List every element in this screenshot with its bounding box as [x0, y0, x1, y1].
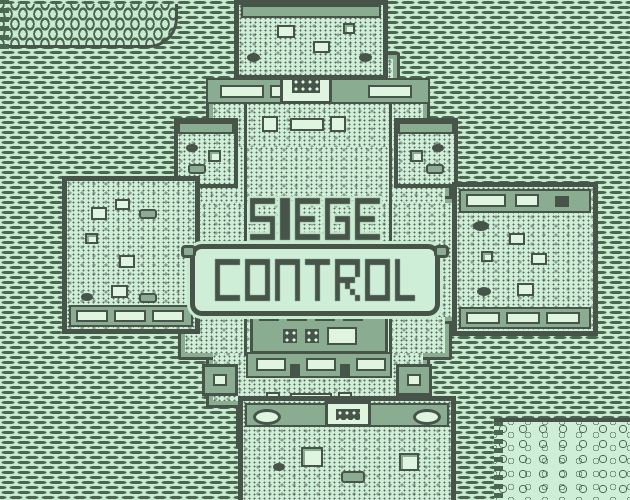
room-west	[62, 176, 200, 334]
room-north	[234, 0, 388, 80]
console-buttons	[336, 409, 360, 420]
doorway	[555, 196, 569, 207]
tower-window	[407, 374, 421, 386]
console-buttons	[292, 78, 320, 93]
gate-console	[325, 401, 371, 427]
wall-panel	[152, 310, 184, 322]
crate-sprite	[301, 447, 323, 467]
pot-sprite	[186, 144, 198, 152]
table-sprite	[277, 25, 295, 38]
wall-band	[178, 122, 234, 134]
wall-band	[459, 189, 591, 213]
cobblestone-patch	[494, 418, 630, 500]
wall-band	[398, 122, 454, 134]
machine-panel	[315, 305, 335, 321]
table-sprite	[531, 253, 547, 265]
wall-panel	[466, 194, 506, 207]
round-table-sprite	[413, 409, 441, 425]
table-sprite	[313, 41, 330, 53]
pot-sprite	[473, 221, 489, 231]
wall-panel	[114, 310, 146, 322]
pot-sprite	[477, 287, 491, 296]
pot-sprite	[359, 53, 372, 62]
wall-band	[69, 305, 193, 327]
wall-panel	[220, 85, 264, 98]
machine-panel	[287, 305, 307, 321]
sofa-sprite	[341, 471, 365, 483]
machine-panel	[343, 305, 363, 321]
console-unit	[283, 329, 297, 343]
console-unit	[305, 329, 319, 343]
table-sprite	[517, 283, 534, 296]
tower-se	[396, 364, 432, 396]
table-sprite	[111, 285, 128, 298]
pot-sprite	[273, 463, 285, 471]
wall-band	[459, 307, 591, 329]
wall-band	[241, 5, 381, 18]
table-sprite	[119, 255, 135, 268]
tower-window	[213, 374, 227, 386]
crate-sprite	[410, 150, 423, 162]
sofa-sprite	[188, 164, 206, 174]
wall-post	[340, 364, 350, 376]
room-south	[238, 396, 456, 500]
wall-panel	[546, 312, 580, 324]
pot-sprite	[81, 293, 93, 301]
table-sprite	[115, 199, 130, 210]
table-sprite	[91, 207, 107, 220]
console-screen	[327, 327, 357, 345]
machine-panel	[259, 305, 279, 321]
cobblestone-edge	[494, 422, 503, 500]
crate-sprite	[343, 23, 355, 34]
annex-room-ne	[394, 118, 458, 188]
sofa-sprite	[139, 209, 157, 219]
sofa-sprite	[426, 164, 444, 174]
floor-hatch	[262, 116, 278, 132]
crate-sprite	[208, 150, 221, 162]
wall-panel	[306, 358, 336, 371]
wall-panel	[515, 194, 539, 207]
wall-panel	[466, 312, 500, 324]
sofa-sprite	[139, 293, 157, 303]
pot-sprite	[247, 53, 260, 62]
forest-hedge	[0, 4, 178, 48]
machine-room	[250, 298, 388, 354]
floor-hatch	[330, 116, 346, 132]
floor-grate	[290, 118, 324, 131]
room-east	[452, 182, 598, 336]
title-screen[interactable]	[0, 0, 630, 500]
wall-panel	[356, 358, 386, 371]
wall-panel	[76, 310, 108, 322]
crate-sprite	[85, 233, 98, 244]
pot-sprite	[432, 144, 444, 152]
forest-hedge-edge	[0, 0, 9, 50]
tower-sw	[202, 364, 238, 396]
wall-panel	[368, 85, 412, 98]
table-sprite	[509, 233, 525, 245]
south-gate-wall	[246, 352, 392, 378]
crate-sprite	[399, 453, 419, 471]
wall-panel	[256, 358, 286, 371]
crate-sprite	[481, 251, 493, 262]
round-table-sprite	[253, 409, 281, 425]
wall-post	[290, 364, 300, 376]
wall-panel	[506, 312, 540, 324]
